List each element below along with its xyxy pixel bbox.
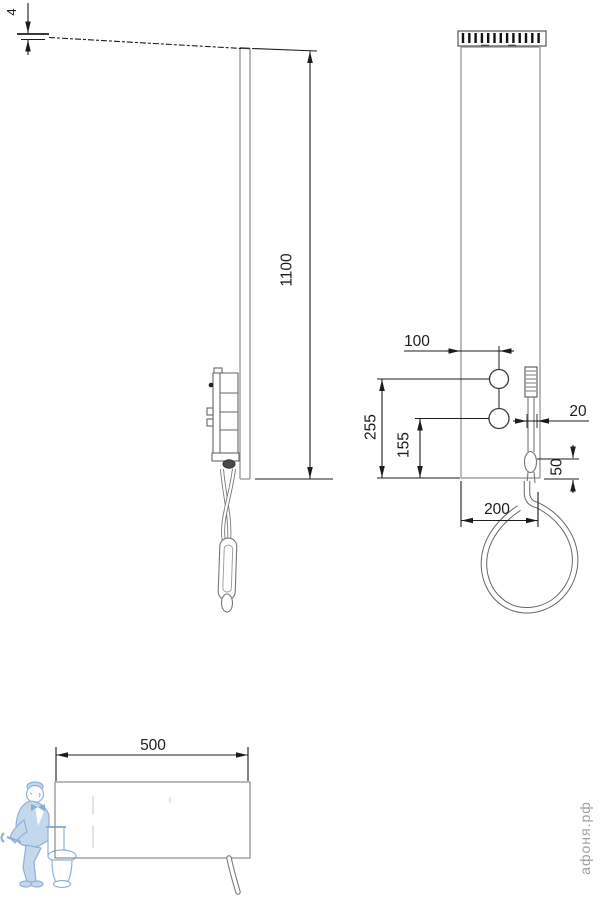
mascot-legs [23,845,41,882]
handshower-mount-knob [223,460,235,468]
mascot-head [27,786,44,803]
dim-155 [415,419,489,478]
plan-detail-dashes [93,796,170,848]
dim-155-label: 155 [396,432,413,458]
drawing-page: 4 1100 100 255 155 20 50 200 500 афоня.р… [0,0,600,900]
dim-255-label: 255 [363,414,380,440]
dim-255 [377,379,490,478]
handshower-side [218,469,237,612]
knob-lower [489,409,509,429]
dim-100-label: 100 [404,333,430,350]
dim-1100-label: 1100 [279,253,296,287]
watermark-text: афоня.рф [577,801,593,875]
dim-50-label: 50 [549,458,566,476]
handshower-front [525,367,538,483]
side-view [207,48,250,612]
technical-drawing-canvas: 4 1100 100 255 155 20 50 200 500 афоня.р… [0,0,600,900]
dim-4-label: 4 [4,8,19,15]
plumber-mascot [2,782,77,888]
front-view [458,31,575,610]
mixer-box [207,368,239,461]
dim-4 [17,3,242,55]
mascot-shoe-right [31,881,43,887]
dim-200-label: 200 [484,501,510,518]
side-panel-outline [240,48,250,479]
dim-500-label: 500 [140,737,166,754]
plan-foot [229,858,238,892]
knob-upper [490,370,509,389]
plan-view [55,782,250,892]
mascot-shoe-left [20,881,32,887]
handshower-holder [525,452,537,473]
toilet-base [54,881,71,888]
dim-20-label: 20 [569,403,587,420]
toilet-pedestal [52,860,72,882]
dimensions [17,3,589,781]
plan-outline [55,782,250,858]
mixer-box-dot [209,383,214,388]
